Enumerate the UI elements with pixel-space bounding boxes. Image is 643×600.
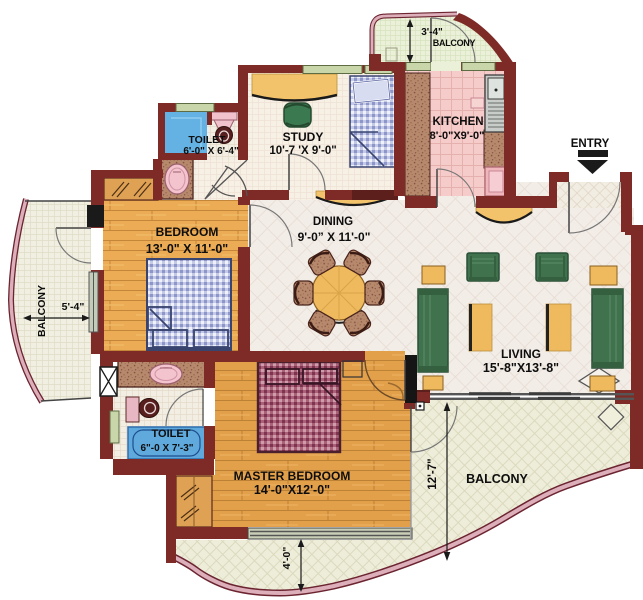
svg-text:8'-0"X9'-0": 8'-0"X9'-0" bbox=[430, 130, 485, 142]
svg-text:BALCONY: BALCONY bbox=[36, 285, 48, 337]
svg-text:6'-0" X 6'-4": 6'-0" X 6'-4" bbox=[183, 146, 239, 157]
svg-text:BALCONY: BALCONY bbox=[466, 472, 528, 486]
svg-text:TOILET: TOILET bbox=[188, 134, 226, 146]
svg-text:BALCONY: BALCONY bbox=[433, 38, 476, 48]
svg-text:5'-4": 5'-4" bbox=[62, 301, 85, 313]
svg-text:10'-7 'X 9'-0": 10'-7 'X 9'-0" bbox=[269, 145, 336, 157]
svg-text:14'-0"X12'-0": 14'-0"X12'-0" bbox=[254, 483, 330, 497]
svg-text:6"-0 X 7'-3": 6"-0 X 7'-3" bbox=[141, 443, 194, 454]
svg-text:13'-0" X 11'-0": 13'-0" X 11'-0" bbox=[146, 242, 229, 256]
svg-text:MASTER BEDROOM: MASTER BEDROOM bbox=[234, 469, 351, 483]
svg-text:STUDY: STUDY bbox=[283, 130, 324, 144]
svg-text:DINING: DINING bbox=[313, 216, 353, 228]
svg-text:KITCHEN: KITCHEN bbox=[432, 116, 483, 128]
svg-text:BEDROOM: BEDROOM bbox=[156, 225, 219, 239]
svg-text:TOILET: TOILET bbox=[152, 428, 191, 440]
svg-text:12'-7": 12'-7" bbox=[427, 458, 439, 489]
svg-text:9'-0” X 11'-0": 9'-0” X 11'-0" bbox=[298, 230, 371, 244]
svg-text:4'-0": 4'-0" bbox=[281, 547, 293, 570]
svg-text:ENTRY: ENTRY bbox=[571, 138, 610, 150]
svg-text:3'-4": 3'-4" bbox=[421, 27, 443, 38]
svg-text:LIVING: LIVING bbox=[501, 347, 541, 361]
svg-text:15'-8"X13'-8": 15'-8"X13'-8" bbox=[483, 361, 559, 375]
